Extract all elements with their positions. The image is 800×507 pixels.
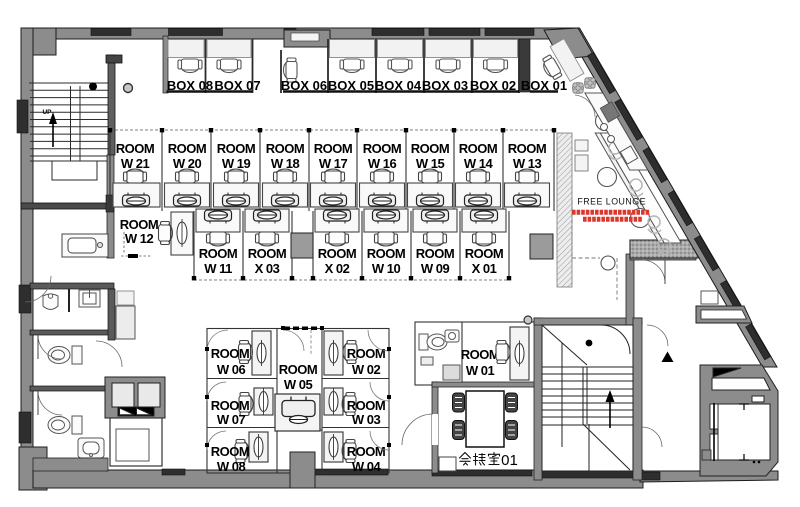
svg-text:BOX 06: BOX 06 xyxy=(281,78,327,93)
svg-text:ROOM: ROOM xyxy=(199,246,237,261)
svg-text:ROOM: ROOM xyxy=(459,141,497,156)
svg-text:ROOM: ROOM xyxy=(461,347,499,362)
svg-text:UP: UP xyxy=(42,109,52,116)
svg-text:ROOM: ROOM xyxy=(416,246,454,261)
svg-text:W 03: W 03 xyxy=(352,412,381,427)
svg-text:BOX 01: BOX 01 xyxy=(521,78,567,93)
svg-text:ROOM: ROOM xyxy=(266,141,304,156)
svg-text:ROOM: ROOM xyxy=(508,141,546,156)
svg-text:W 05: W 05 xyxy=(284,377,313,392)
svg-text:ROOM: ROOM xyxy=(120,217,158,232)
svg-text:ROOM: ROOM xyxy=(347,398,385,413)
svg-text:W 06: W 06 xyxy=(217,362,246,377)
svg-text:BOX 03: BOX 03 xyxy=(422,78,468,93)
svg-text:ROOM: ROOM xyxy=(211,398,249,413)
svg-text:ROOM: ROOM xyxy=(211,444,249,459)
svg-text:W 04: W 04 xyxy=(352,459,382,474)
svg-text:X 01: X 01 xyxy=(472,261,497,276)
svg-text:ROOM: ROOM xyxy=(465,246,503,261)
svg-text:W 02: W 02 xyxy=(352,362,381,377)
svg-text:W 11: W 11 xyxy=(204,261,232,276)
svg-text:ROOM: ROOM xyxy=(279,362,317,377)
svg-text:ROOM: ROOM xyxy=(314,141,352,156)
svg-text:W 09: W 09 xyxy=(421,261,450,276)
svg-text:W 12: W 12 xyxy=(125,231,154,246)
svg-text:ROOM: ROOM xyxy=(217,141,255,156)
svg-text:W 07: W 07 xyxy=(217,412,246,427)
svg-text:ROOM: ROOM xyxy=(347,444,385,459)
svg-text:X 02: X 02 xyxy=(325,261,350,276)
svg-text:ROOM: ROOM xyxy=(248,246,286,261)
svg-text:ROOM: ROOM xyxy=(367,246,405,261)
svg-text:ROOM: ROOM xyxy=(347,346,385,361)
svg-text:BOX 08: BOX 08 xyxy=(167,78,213,93)
svg-text:BOX 02: BOX 02 xyxy=(470,78,516,93)
svg-text:ROOM: ROOM xyxy=(116,141,154,156)
svg-text:W 10: W 10 xyxy=(372,261,401,276)
svg-text:W 08: W 08 xyxy=(217,459,246,474)
svg-text:ROOM: ROOM xyxy=(168,141,206,156)
svg-text:ROOM: ROOM xyxy=(363,141,401,156)
svg-text:BOX 05: BOX 05 xyxy=(328,78,374,93)
svg-text:ROOM: ROOM xyxy=(318,246,356,261)
svg-text:W 01: W 01 xyxy=(466,363,495,378)
svg-text:01: 01 xyxy=(501,452,518,469)
svg-text:ROOM: ROOM xyxy=(211,346,249,361)
svg-text:BOX 07: BOX 07 xyxy=(214,78,260,93)
svg-text:FREE LOUNGE: FREE LOUNGE xyxy=(577,196,646,206)
svg-text:BOX 04: BOX 04 xyxy=(375,78,422,93)
svg-text:ROOM: ROOM xyxy=(411,141,449,156)
svg-text:X 03: X 03 xyxy=(255,261,280,276)
